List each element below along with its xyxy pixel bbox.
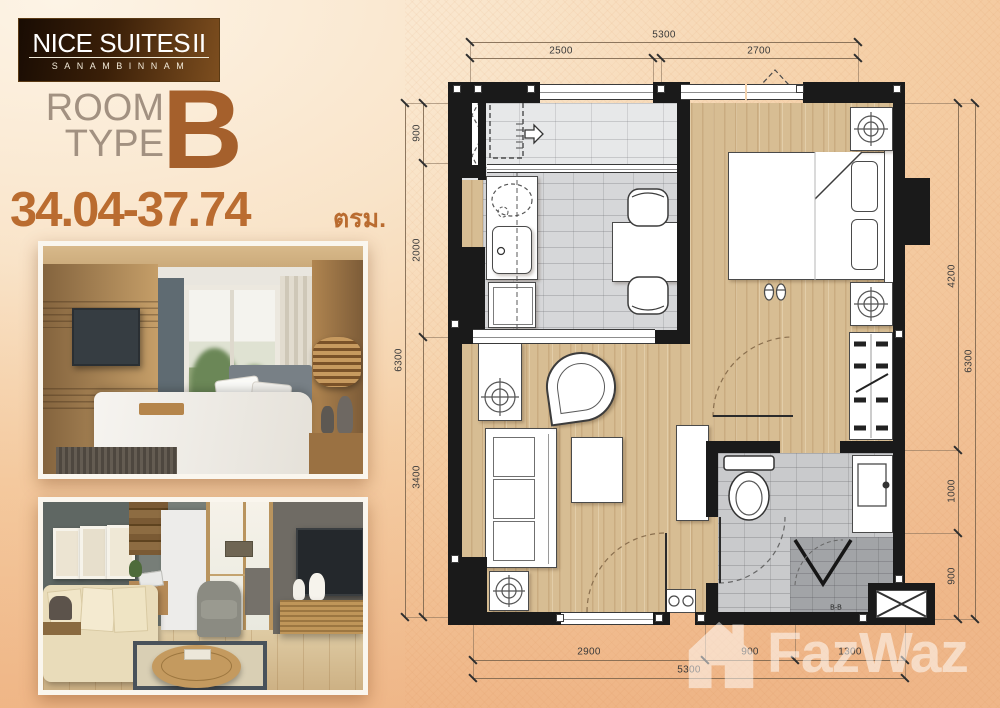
- vase: [293, 579, 306, 600]
- armchair-cushion: [201, 600, 236, 619]
- living-scene: [43, 502, 363, 690]
- area-range: 34.04-37.74: [10, 182, 250, 238]
- window: [540, 84, 653, 100]
- column-marker: [451, 320, 459, 328]
- room-type-letter: B: [162, 74, 243, 186]
- door-leaf: [665, 533, 667, 612]
- wall-segment: [677, 82, 690, 337]
- column-marker: [697, 614, 705, 622]
- tv-screen: [296, 528, 364, 596]
- dim-line: [975, 103, 976, 619]
- toilet-icon: [724, 456, 774, 520]
- slat-lamp: [313, 337, 361, 387]
- logo-title: NICE SUITESII: [29, 30, 208, 58]
- section-label: B-B: [830, 605, 842, 612]
- dim-line: [405, 103, 406, 617]
- table-lamp-symbol: [481, 378, 519, 416]
- console-slats: [280, 600, 363, 634]
- column-marker: [527, 85, 535, 93]
- wall-pier: [448, 82, 472, 170]
- column-marker: [895, 330, 903, 338]
- table-books: [184, 649, 212, 660]
- table-lamp-symbol: [854, 112, 888, 146]
- column-marker: [451, 555, 459, 563]
- bed-blanket-fold: [815, 152, 862, 280]
- picture-frame: [80, 526, 108, 579]
- dim-bottom-seg-0: 2900: [577, 647, 600, 658]
- balcony-door-frame: [561, 612, 653, 625]
- column-marker: [859, 614, 867, 622]
- stove-burner: [498, 207, 508, 217]
- door-arc-balcony: [587, 533, 666, 612]
- dim-top-seg-0: 2500: [549, 46, 572, 57]
- rug: [56, 447, 178, 474]
- pass-window: [487, 164, 677, 173]
- wall-segment: [893, 82, 905, 625]
- sofa-cushion: [112, 586, 148, 633]
- nightstand: [309, 433, 363, 474]
- door-arc-bedroom: [713, 337, 793, 417]
- column-marker: [796, 85, 804, 93]
- entry-arrow-icon: [525, 125, 543, 143]
- tv-screen: [72, 308, 140, 367]
- dim-right-seg-0: 4200: [947, 264, 958, 287]
- wall-segment: [706, 441, 718, 517]
- pendant-lamp: [225, 541, 253, 556]
- vanity-sink-icon: [858, 464, 890, 506]
- column-marker: [895, 575, 903, 583]
- dim-left-seg-2: 3400: [412, 465, 423, 488]
- area-unit: ตรม.: [333, 199, 386, 239]
- wall-segment: [803, 82, 905, 103]
- dim-bottom-total: 5300: [677, 665, 700, 676]
- room-type-heading: ROOM TYPE: [28, 90, 164, 162]
- sink-faucet: [498, 248, 505, 255]
- entry-cabinet-dashed: [490, 96, 523, 158]
- wall-segment: [840, 441, 893, 453]
- column-marker: [474, 85, 482, 93]
- wall-segment: [460, 330, 473, 344]
- bed-tray: [139, 403, 184, 414]
- wall-segment: [653, 330, 690, 344]
- door-leaf: [713, 415, 793, 417]
- room-type-line1: ROOM: [28, 90, 164, 126]
- photo-bedroom: [38, 241, 368, 479]
- table-lamp: [49, 596, 71, 620]
- brochure-page: NICE SUITESII SANAMBINNAM ROOM TYPE B 34…: [0, 0, 1000, 708]
- logo-numeral: II: [192, 28, 205, 58]
- dim-right-total: 6300: [964, 349, 975, 372]
- dim-top-total: 5300: [652, 30, 675, 41]
- slippers-icon: [765, 284, 787, 300]
- washer-dials: [669, 596, 693, 606]
- vase: [321, 406, 334, 433]
- wall-segment: [448, 165, 486, 178]
- table-lamp-symbol: [854, 287, 888, 321]
- dim-left-seg-1: 2000: [412, 238, 423, 261]
- dim-left-seg-0: 900: [412, 124, 423, 142]
- cabinet-comb: [516, 124, 523, 148]
- photo-living-room: [38, 497, 368, 695]
- wardrobe-hangers: [854, 334, 888, 438]
- dim-top-seg-1: 2700: [747, 46, 770, 57]
- wall-pier: [448, 247, 485, 330]
- column-marker: [556, 614, 564, 622]
- table-lamp-symbol: [493, 575, 525, 607]
- dim-line: [423, 103, 424, 617]
- logo-title-text: NICE SUITES: [32, 28, 190, 58]
- shaft-box: [876, 590, 927, 618]
- window: [681, 84, 745, 100]
- picture-frame: [53, 528, 81, 579]
- dim-left-total: 6300: [394, 348, 405, 371]
- bedroom-scene: [43, 246, 363, 474]
- column-marker: [657, 85, 665, 93]
- door-leaf: [719, 517, 721, 583]
- wall-segment: [448, 612, 563, 625]
- column-marker: [453, 85, 461, 93]
- window: [473, 329, 655, 344]
- dim-line: [958, 103, 959, 619]
- vase: [309, 573, 325, 599]
- balcony-door-frame: [747, 84, 803, 100]
- dim-line: [470, 42, 858, 43]
- dim-bottom-seg-1: 900: [741, 647, 759, 658]
- plant: [129, 560, 142, 577]
- balcony-chair: [245, 568, 271, 615]
- dining-chair: [628, 189, 668, 226]
- wall-column: [897, 178, 930, 245]
- dim-right-seg-1: 1000: [947, 479, 958, 502]
- vase: [337, 396, 353, 432]
- dim-right-seg-2: 900: [947, 567, 958, 585]
- column-marker: [893, 85, 901, 93]
- dining-chair: [628, 277, 668, 314]
- column-marker: [655, 614, 663, 622]
- door-arc-bathroom: [719, 517, 785, 583]
- side-table: [43, 622, 81, 635]
- shower-glass: [795, 540, 851, 584]
- dim-bottom-seg-2: 1300: [838, 647, 861, 658]
- room-type-line2: TYPE: [28, 126, 164, 162]
